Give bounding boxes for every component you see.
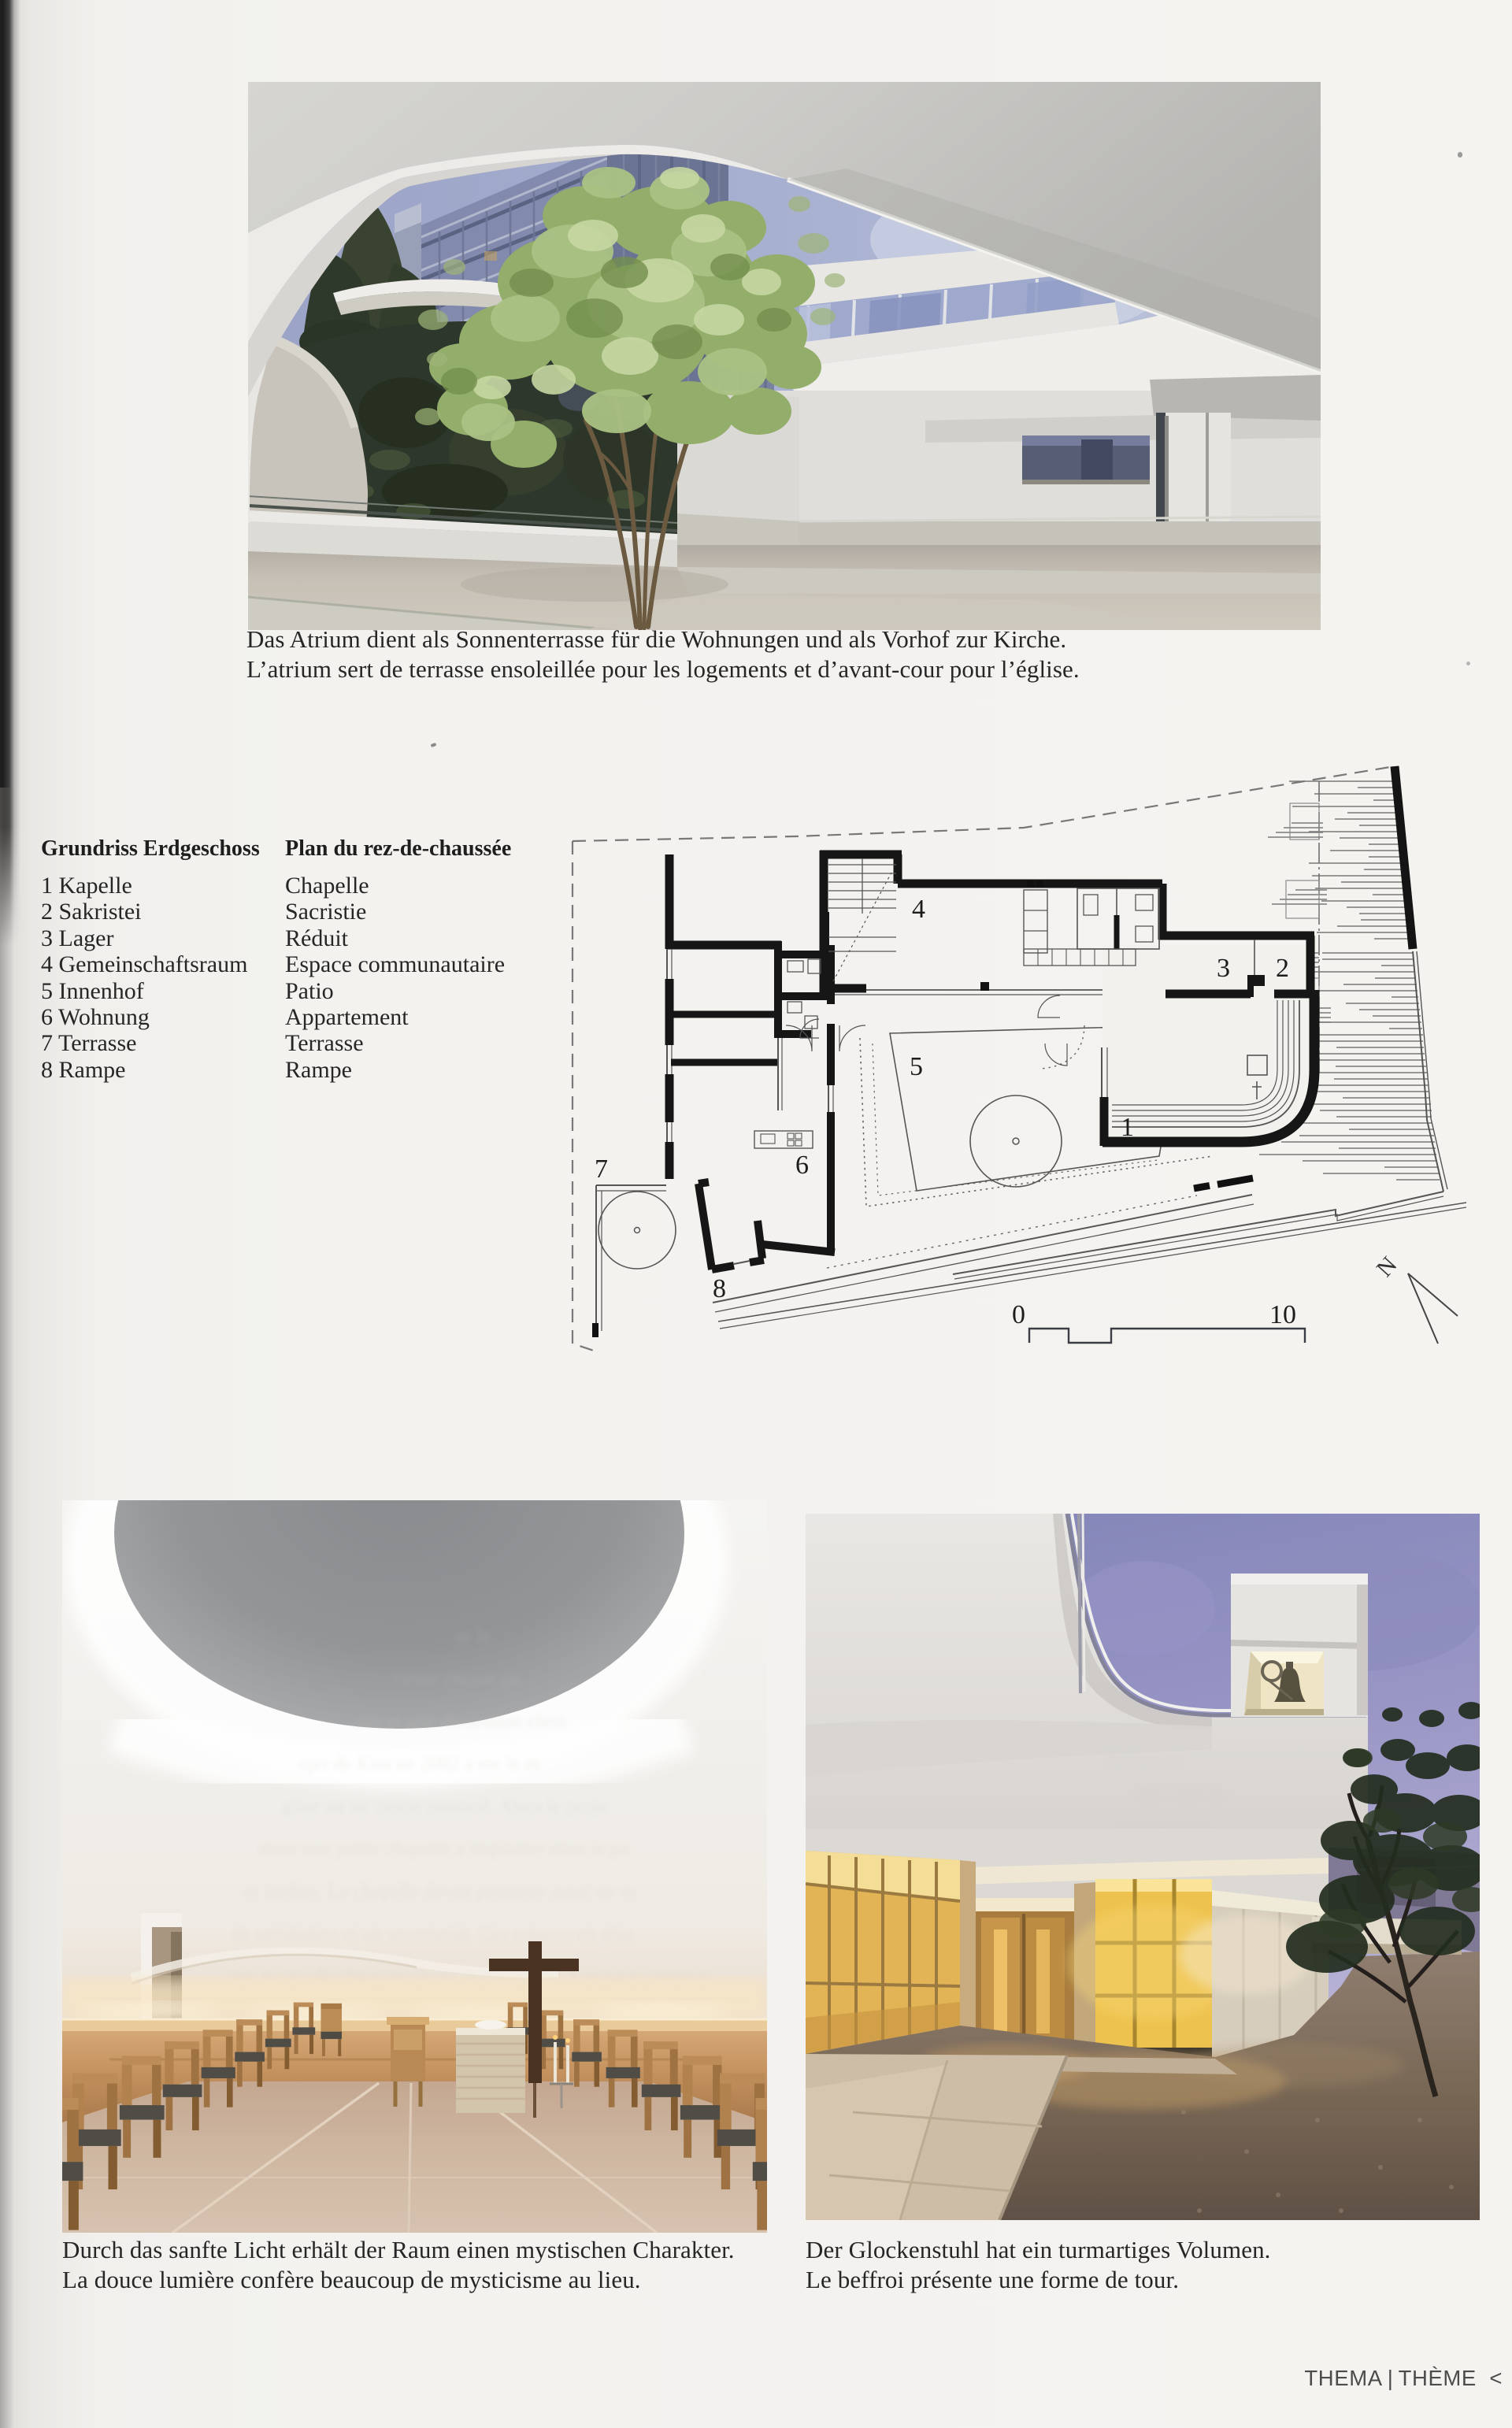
svg-text:es jardins. La chapelle devait: es jardins. La chapelle devait proposer … <box>243 1881 636 1902</box>
svg-text:6: 6 <box>795 1151 809 1180</box>
svg-text:glise ou un centre pastoral. A: glise ou un centre pastoral. Alors le pr… <box>283 1796 606 1817</box>
svg-text:mme une petite chapelle a impl: mme une petite chapelle a implanter dans… <box>259 1838 628 1859</box>
svg-text:8: 8 <box>713 1274 726 1303</box>
svg-text:2: 2 <box>1276 954 1289 983</box>
svg-text:das Licht im: das Licht im <box>1136 1783 1227 1803</box>
svg-text:ojet de Kim en 2002 a ete le m: ojet de Kim en 2002 a ete le m <box>298 1753 540 1774</box>
svg-text:1: 1 <box>1121 1113 1134 1142</box>
svg-text:4: 4 <box>912 895 925 924</box>
svg-text:5: 5 <box>910 1052 923 1081</box>
svg-text:de seminaires et un secretaria: de seminaires et un secretariat. Ces esp… <box>232 1923 635 1944</box>
svg-text:aire et une dimension chris: aire et une dimension chris <box>354 1711 565 1732</box>
svg-text:llteti e statt: llteti e statt <box>1105 1750 1186 1770</box>
svg-text:N: N <box>1372 1251 1403 1281</box>
svg-text:10: 10 <box>1269 1300 1296 1329</box>
svg-text:7: 7 <box>595 1155 608 1184</box>
svg-text:0: 0 <box>1012 1300 1025 1329</box>
svg-text:3: 3 <box>1217 954 1230 983</box>
svg-text:ur le: ur le <box>456 1625 491 1647</box>
svg-text:rieure encore pu: rieure encore pu <box>393 1668 521 1689</box>
